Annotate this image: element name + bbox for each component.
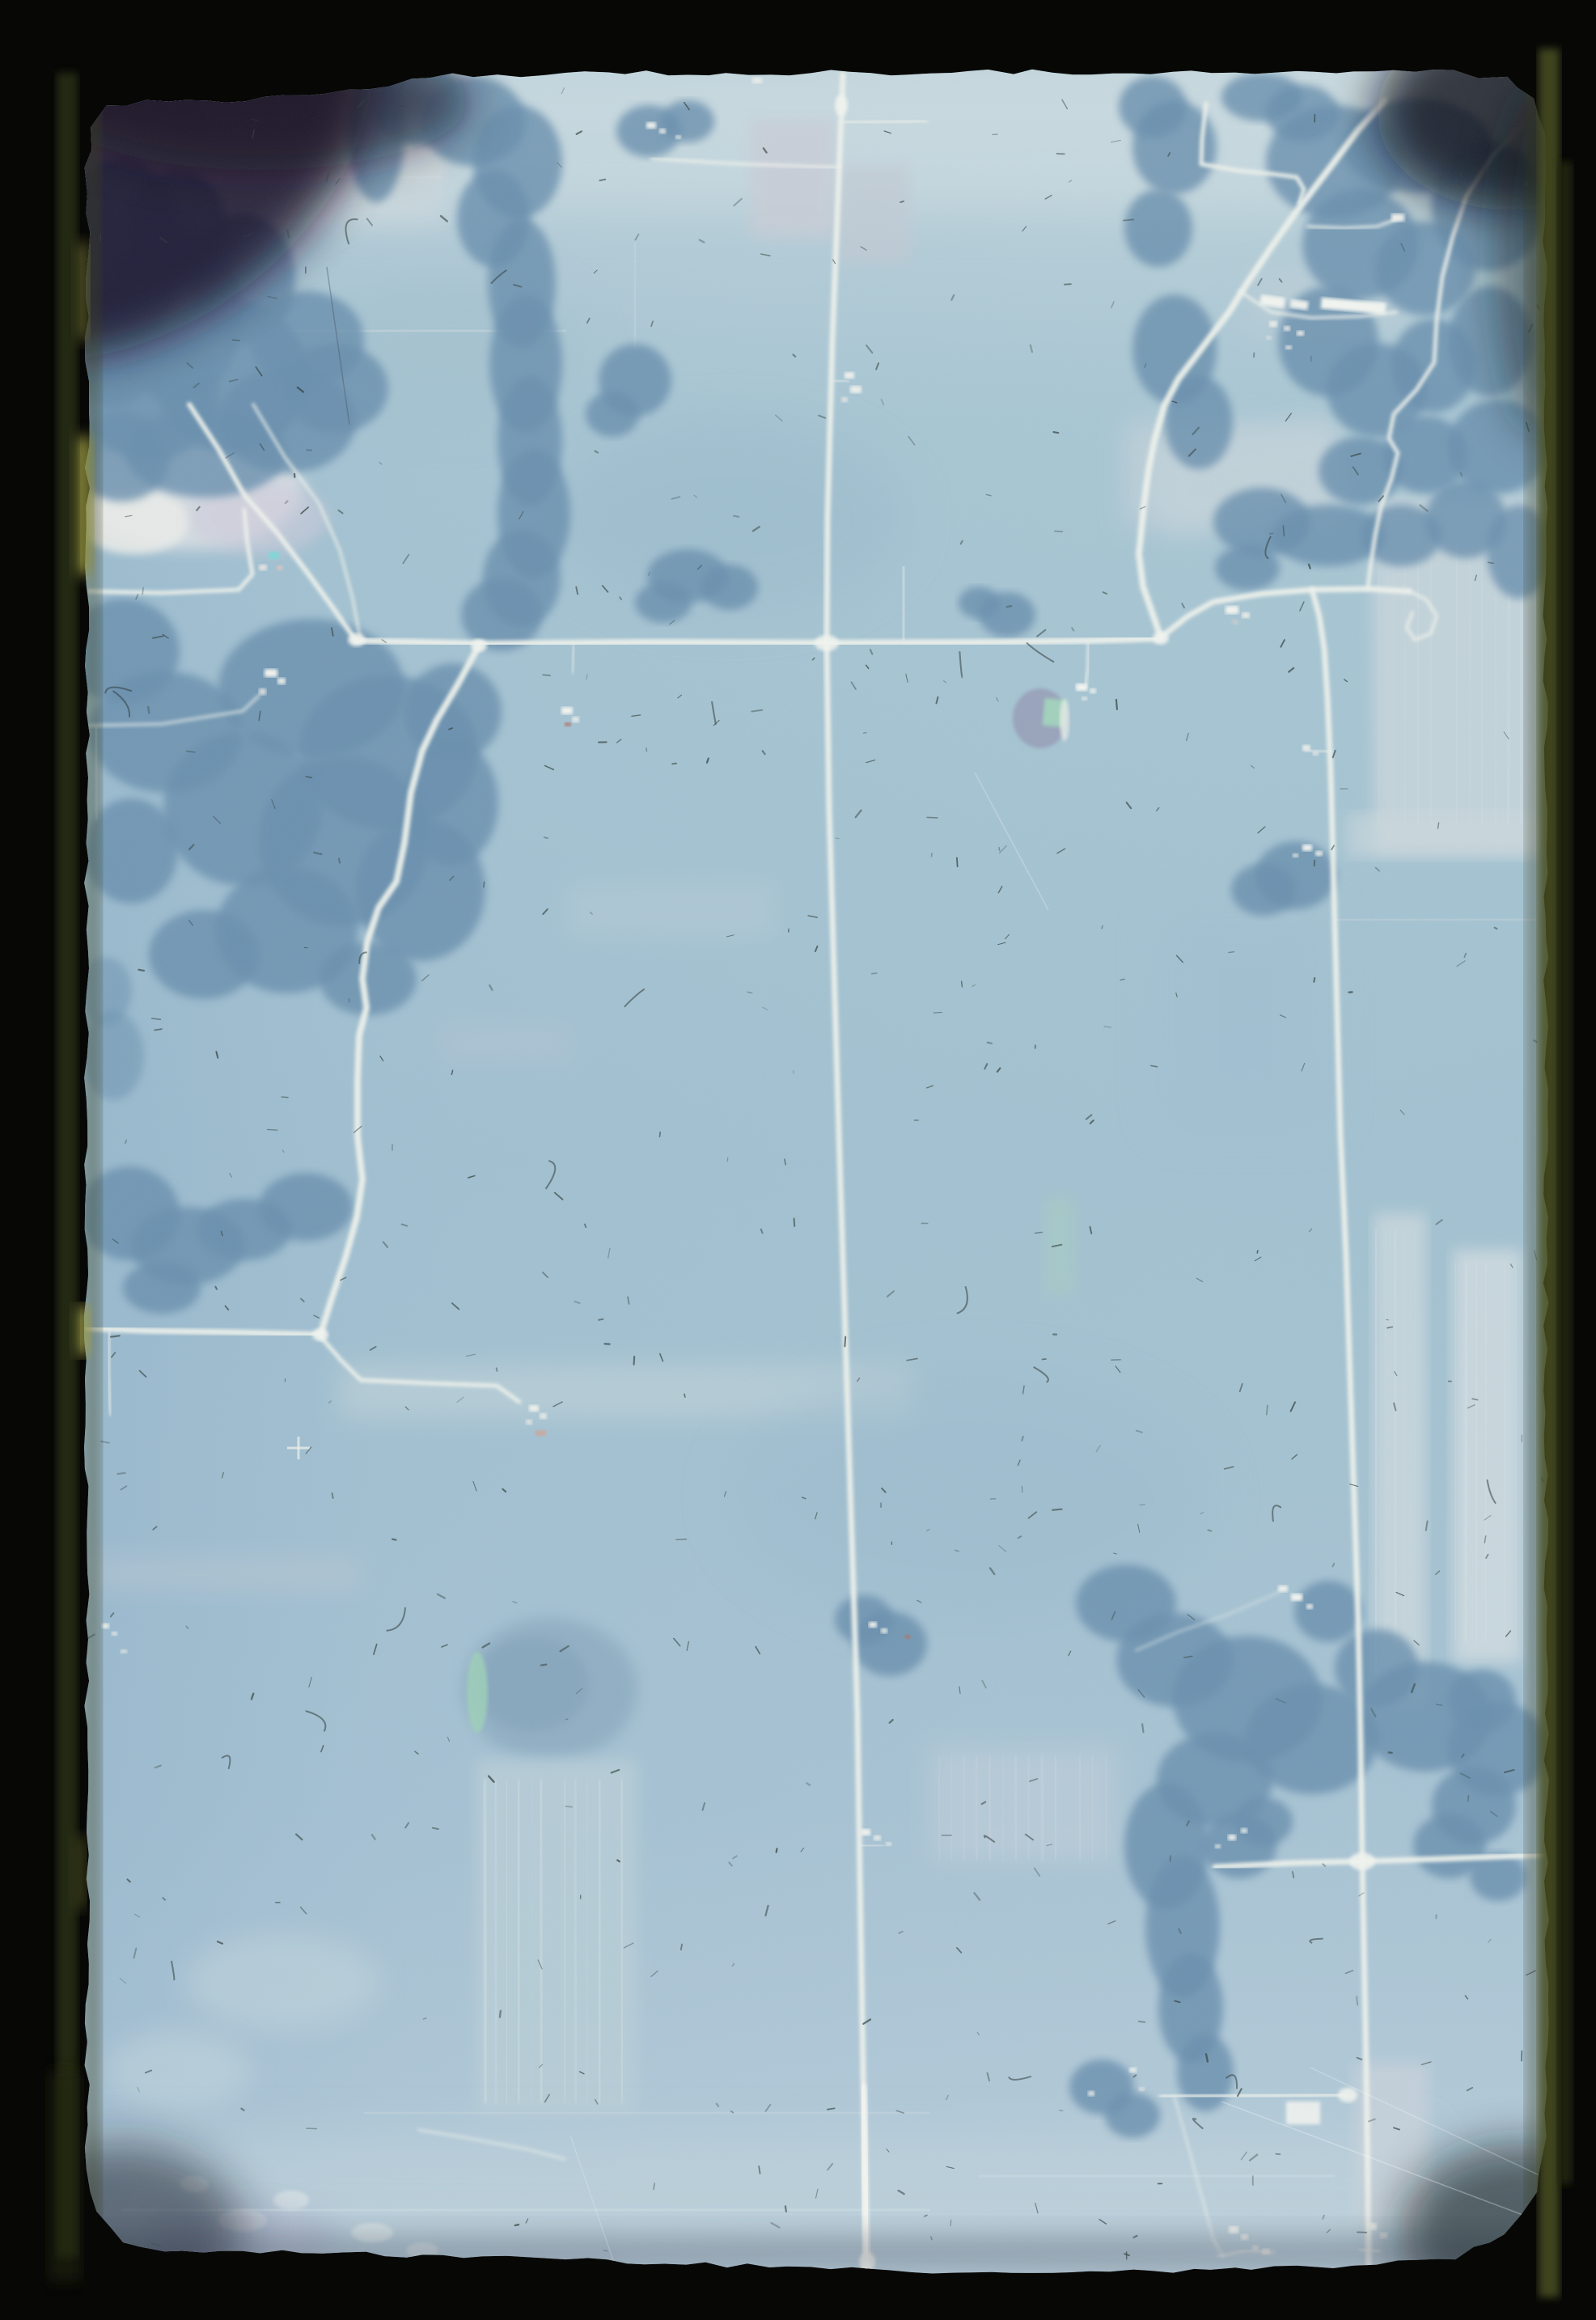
- slide-scan: [0, 0, 1596, 2320]
- aerial-photograph-canvas: [0, 0, 1596, 2320]
- photo-emulsion: [0, 0, 1596, 2320]
- film-grain-layer: [0, 0, 1596, 2320]
